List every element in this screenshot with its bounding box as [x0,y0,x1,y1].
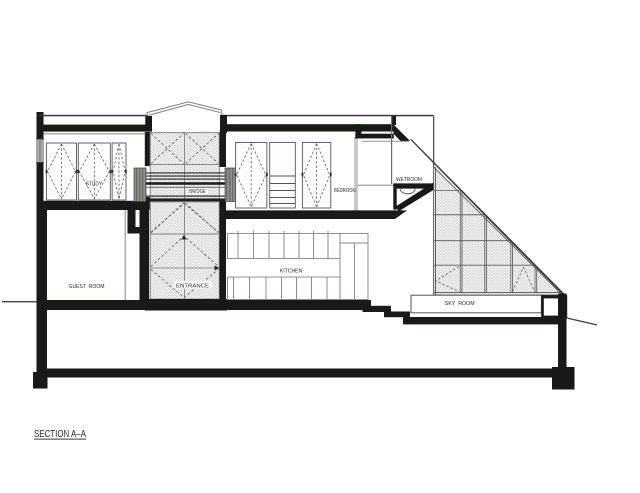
svg-text:GUEST ROOM: GUEST ROOM [69,284,105,290]
svg-text:BEDROOM: BEDROOM [334,188,356,194]
svg-text:STUDY: STUDY [86,181,103,187]
svg-text:ENTRANCE: ENTRANCE [176,283,210,289]
svg-text:BRIDGE: BRIDGE [189,189,206,195]
svg-text:SECTION A–A: SECTION A–A [34,429,86,440]
svg-text:SKY ROOM: SKY ROOM [445,301,475,307]
svg-text:KITCHEN: KITCHEN [280,268,303,274]
svg-text:WETROOM: WETROOM [396,177,422,183]
